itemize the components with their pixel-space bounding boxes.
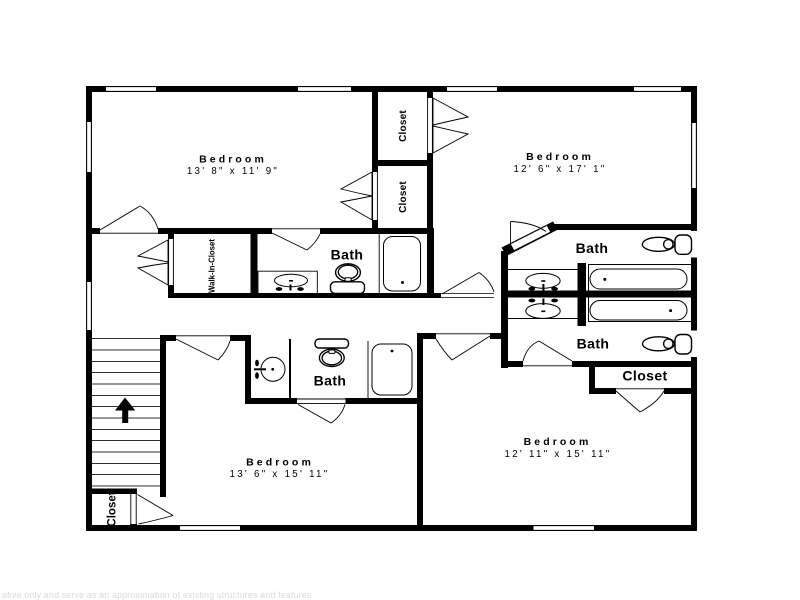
svg-text:13' 6" x 15' 11": 13' 6" x 15' 11"	[230, 469, 330, 480]
svg-text:13' 8" x 11' 9": 13' 8" x 11' 9"	[187, 166, 279, 177]
svg-text:Bath: Bath	[331, 247, 364, 263]
svg-text:Bath: Bath	[577, 336, 610, 352]
svg-text:Closet: Closet	[622, 368, 667, 384]
svg-text:Bath: Bath	[576, 240, 609, 256]
svg-text:Bedroom: Bedroom	[524, 436, 592, 448]
svg-text:Bedroom: Bedroom	[199, 154, 267, 166]
svg-text:Closet: Closet	[398, 110, 409, 142]
svg-text:Bedroom: Bedroom	[246, 456, 314, 468]
svg-text:Walk-In-Closet: Walk-In-Closet	[208, 239, 217, 293]
svg-text:Closet: Closet	[398, 181, 409, 213]
svg-text:12' 6" x 17' 1": 12' 6" x 17' 1"	[513, 164, 606, 175]
svg-text:Bedroom: Bedroom	[526, 151, 594, 163]
svg-text:ative only and serve as an app: ative only and serve as an approximation…	[2, 590, 312, 600]
svg-text:12' 11" x 15' 11": 12' 11" x 15' 11"	[505, 449, 612, 460]
svg-text:Bath: Bath	[314, 373, 347, 389]
svg-text:Closet: Closet	[107, 491, 119, 526]
